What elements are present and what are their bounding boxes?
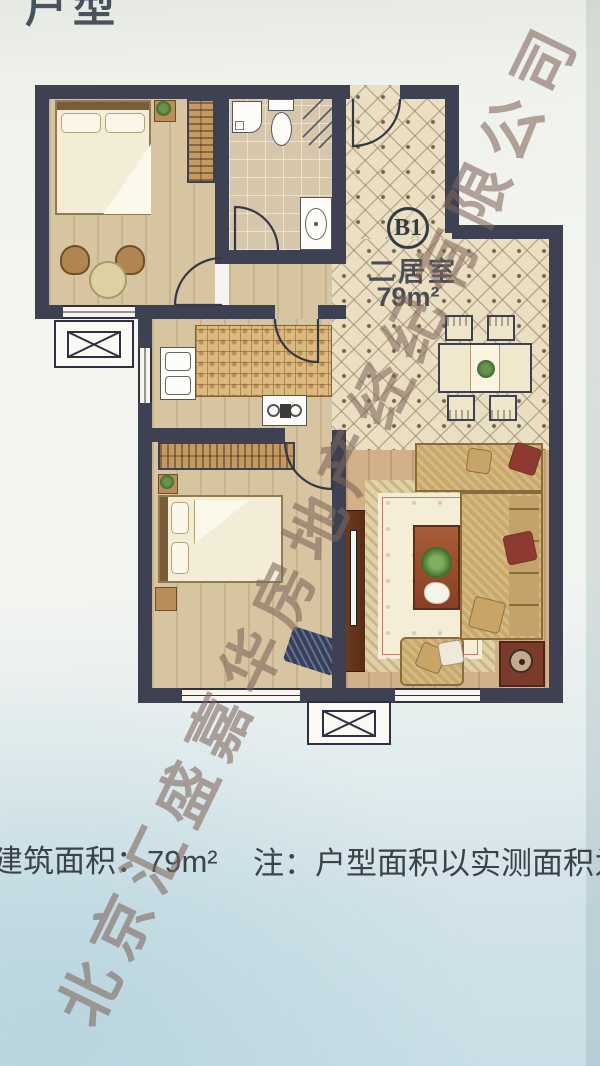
unit-code-badge: B1 (387, 207, 429, 249)
floor-plan: B1 二居室 79m² (35, 85, 563, 750)
door-arc (285, 442, 332, 489)
page-title: 户型 (25, 0, 121, 35)
corner-shower (303, 99, 332, 148)
measurement-note: 注：户型面积以实测面积为 (253, 838, 600, 883)
door-arc (235, 207, 278, 250)
unit-area-label: 79m² (353, 282, 463, 313)
ac-platform (308, 702, 390, 744)
page-edge-shadow (586, 0, 600, 1066)
built-area-label: 建筑面积：79m² (0, 836, 218, 881)
door-arc (275, 319, 318, 362)
ac-platform (55, 321, 133, 367)
photo-page: { "page": { "title": "户型", "watermark": … (0, 0, 600, 1066)
door-arc (175, 258, 222, 305)
plan-symbols (35, 85, 563, 750)
entry-door-arc (353, 99, 400, 146)
